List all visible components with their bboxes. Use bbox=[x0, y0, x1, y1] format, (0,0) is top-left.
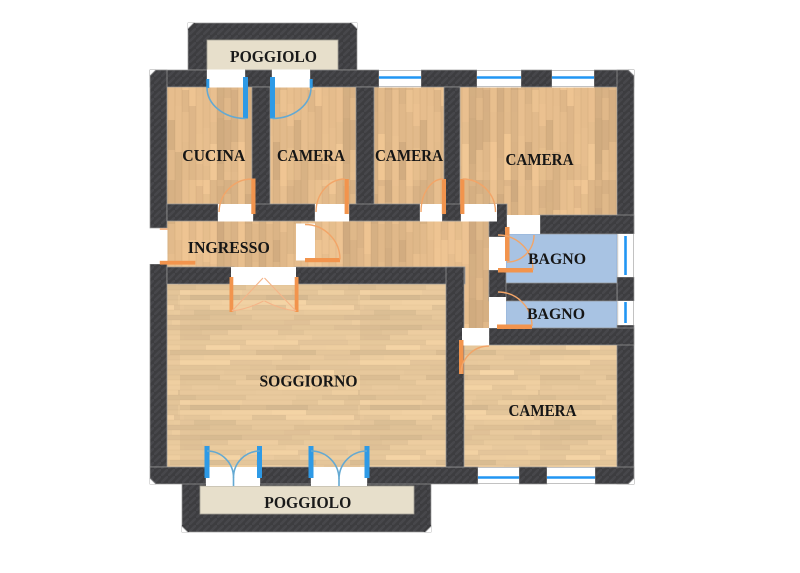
svg-text:INGRESSO: INGRESSO bbox=[188, 238, 270, 257]
svg-text:POGGIOLO: POGGIOLO bbox=[264, 493, 351, 512]
svg-text:CAMERA: CAMERA bbox=[509, 401, 578, 420]
svg-text:CAMERA: CAMERA bbox=[506, 150, 575, 169]
svg-text:BAGNO: BAGNO bbox=[528, 251, 586, 268]
svg-text:CAMERA: CAMERA bbox=[277, 146, 346, 165]
svg-text:CAMERA: CAMERA bbox=[375, 146, 444, 165]
svg-text:BAGNO: BAGNO bbox=[527, 306, 585, 323]
svg-text:SOGGIORNO: SOGGIORNO bbox=[260, 372, 358, 391]
svg-text:POGGIOLO: POGGIOLO bbox=[230, 47, 317, 66]
svg-text:CUCINA: CUCINA bbox=[182, 146, 246, 165]
